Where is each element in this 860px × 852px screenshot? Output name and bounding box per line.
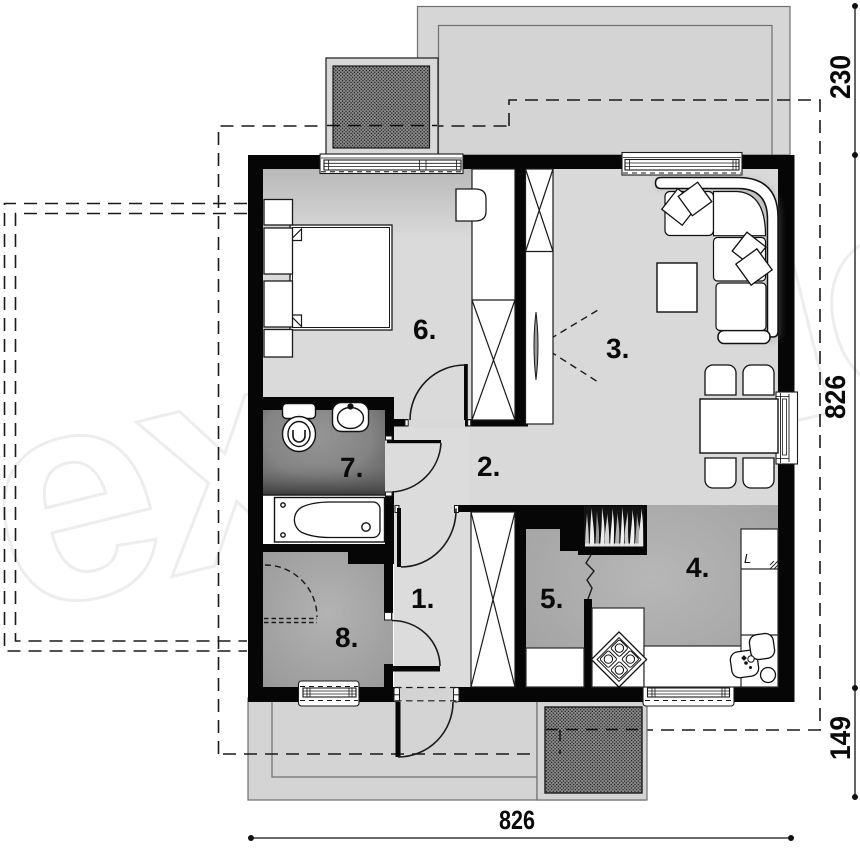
svg-text:8.: 8. [335, 622, 358, 653]
svg-text:230: 230 [825, 55, 857, 99]
svg-text:6.: 6. [413, 314, 436, 345]
svg-text:L: L [744, 551, 751, 566]
svg-text:7.: 7. [340, 452, 363, 483]
svg-text:149: 149 [825, 716, 857, 760]
svg-text:5.: 5. [540, 583, 563, 614]
svg-text:3.: 3. [606, 333, 629, 364]
svg-text:826: 826 [499, 805, 535, 835]
svg-text:826: 826 [820, 375, 852, 419]
svg-text:2.: 2. [477, 451, 500, 482]
svg-text:4.: 4. [686, 552, 709, 583]
svg-text:1.: 1. [411, 583, 434, 614]
